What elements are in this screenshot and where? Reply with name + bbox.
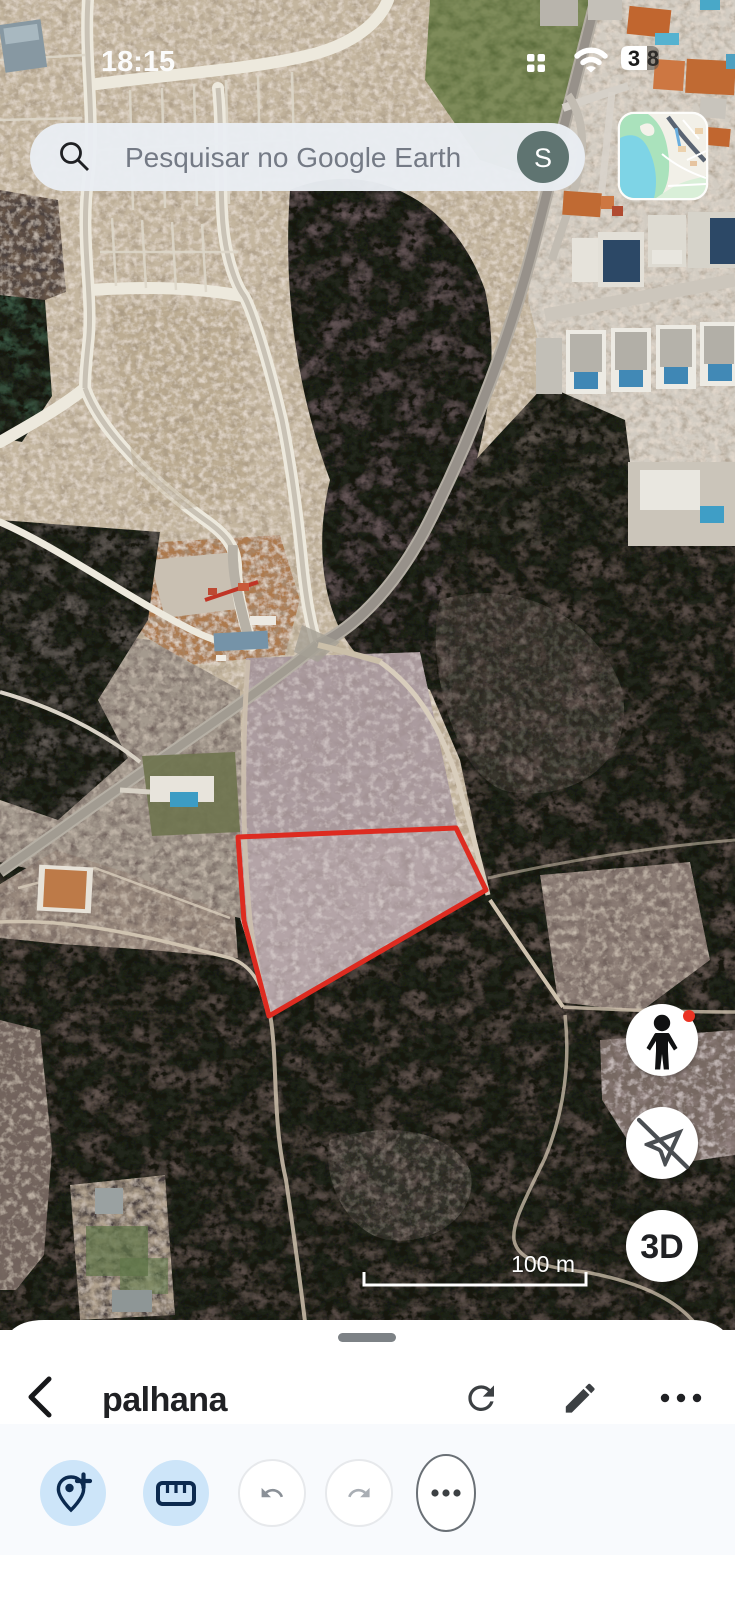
svg-text:100 m: 100 m (511, 1251, 575, 1277)
svg-text:S: S (534, 143, 552, 173)
svg-text:3: 3 (628, 46, 640, 71)
svg-text:18:15: 18:15 (101, 46, 175, 78)
svg-text:palhana: palhana (102, 1381, 229, 1419)
svg-text:3D: 3D (640, 1228, 683, 1266)
svg-text:8: 8 (647, 46, 659, 71)
svg-text:Pesquisar no Google Earth: Pesquisar no Google Earth (125, 142, 461, 173)
